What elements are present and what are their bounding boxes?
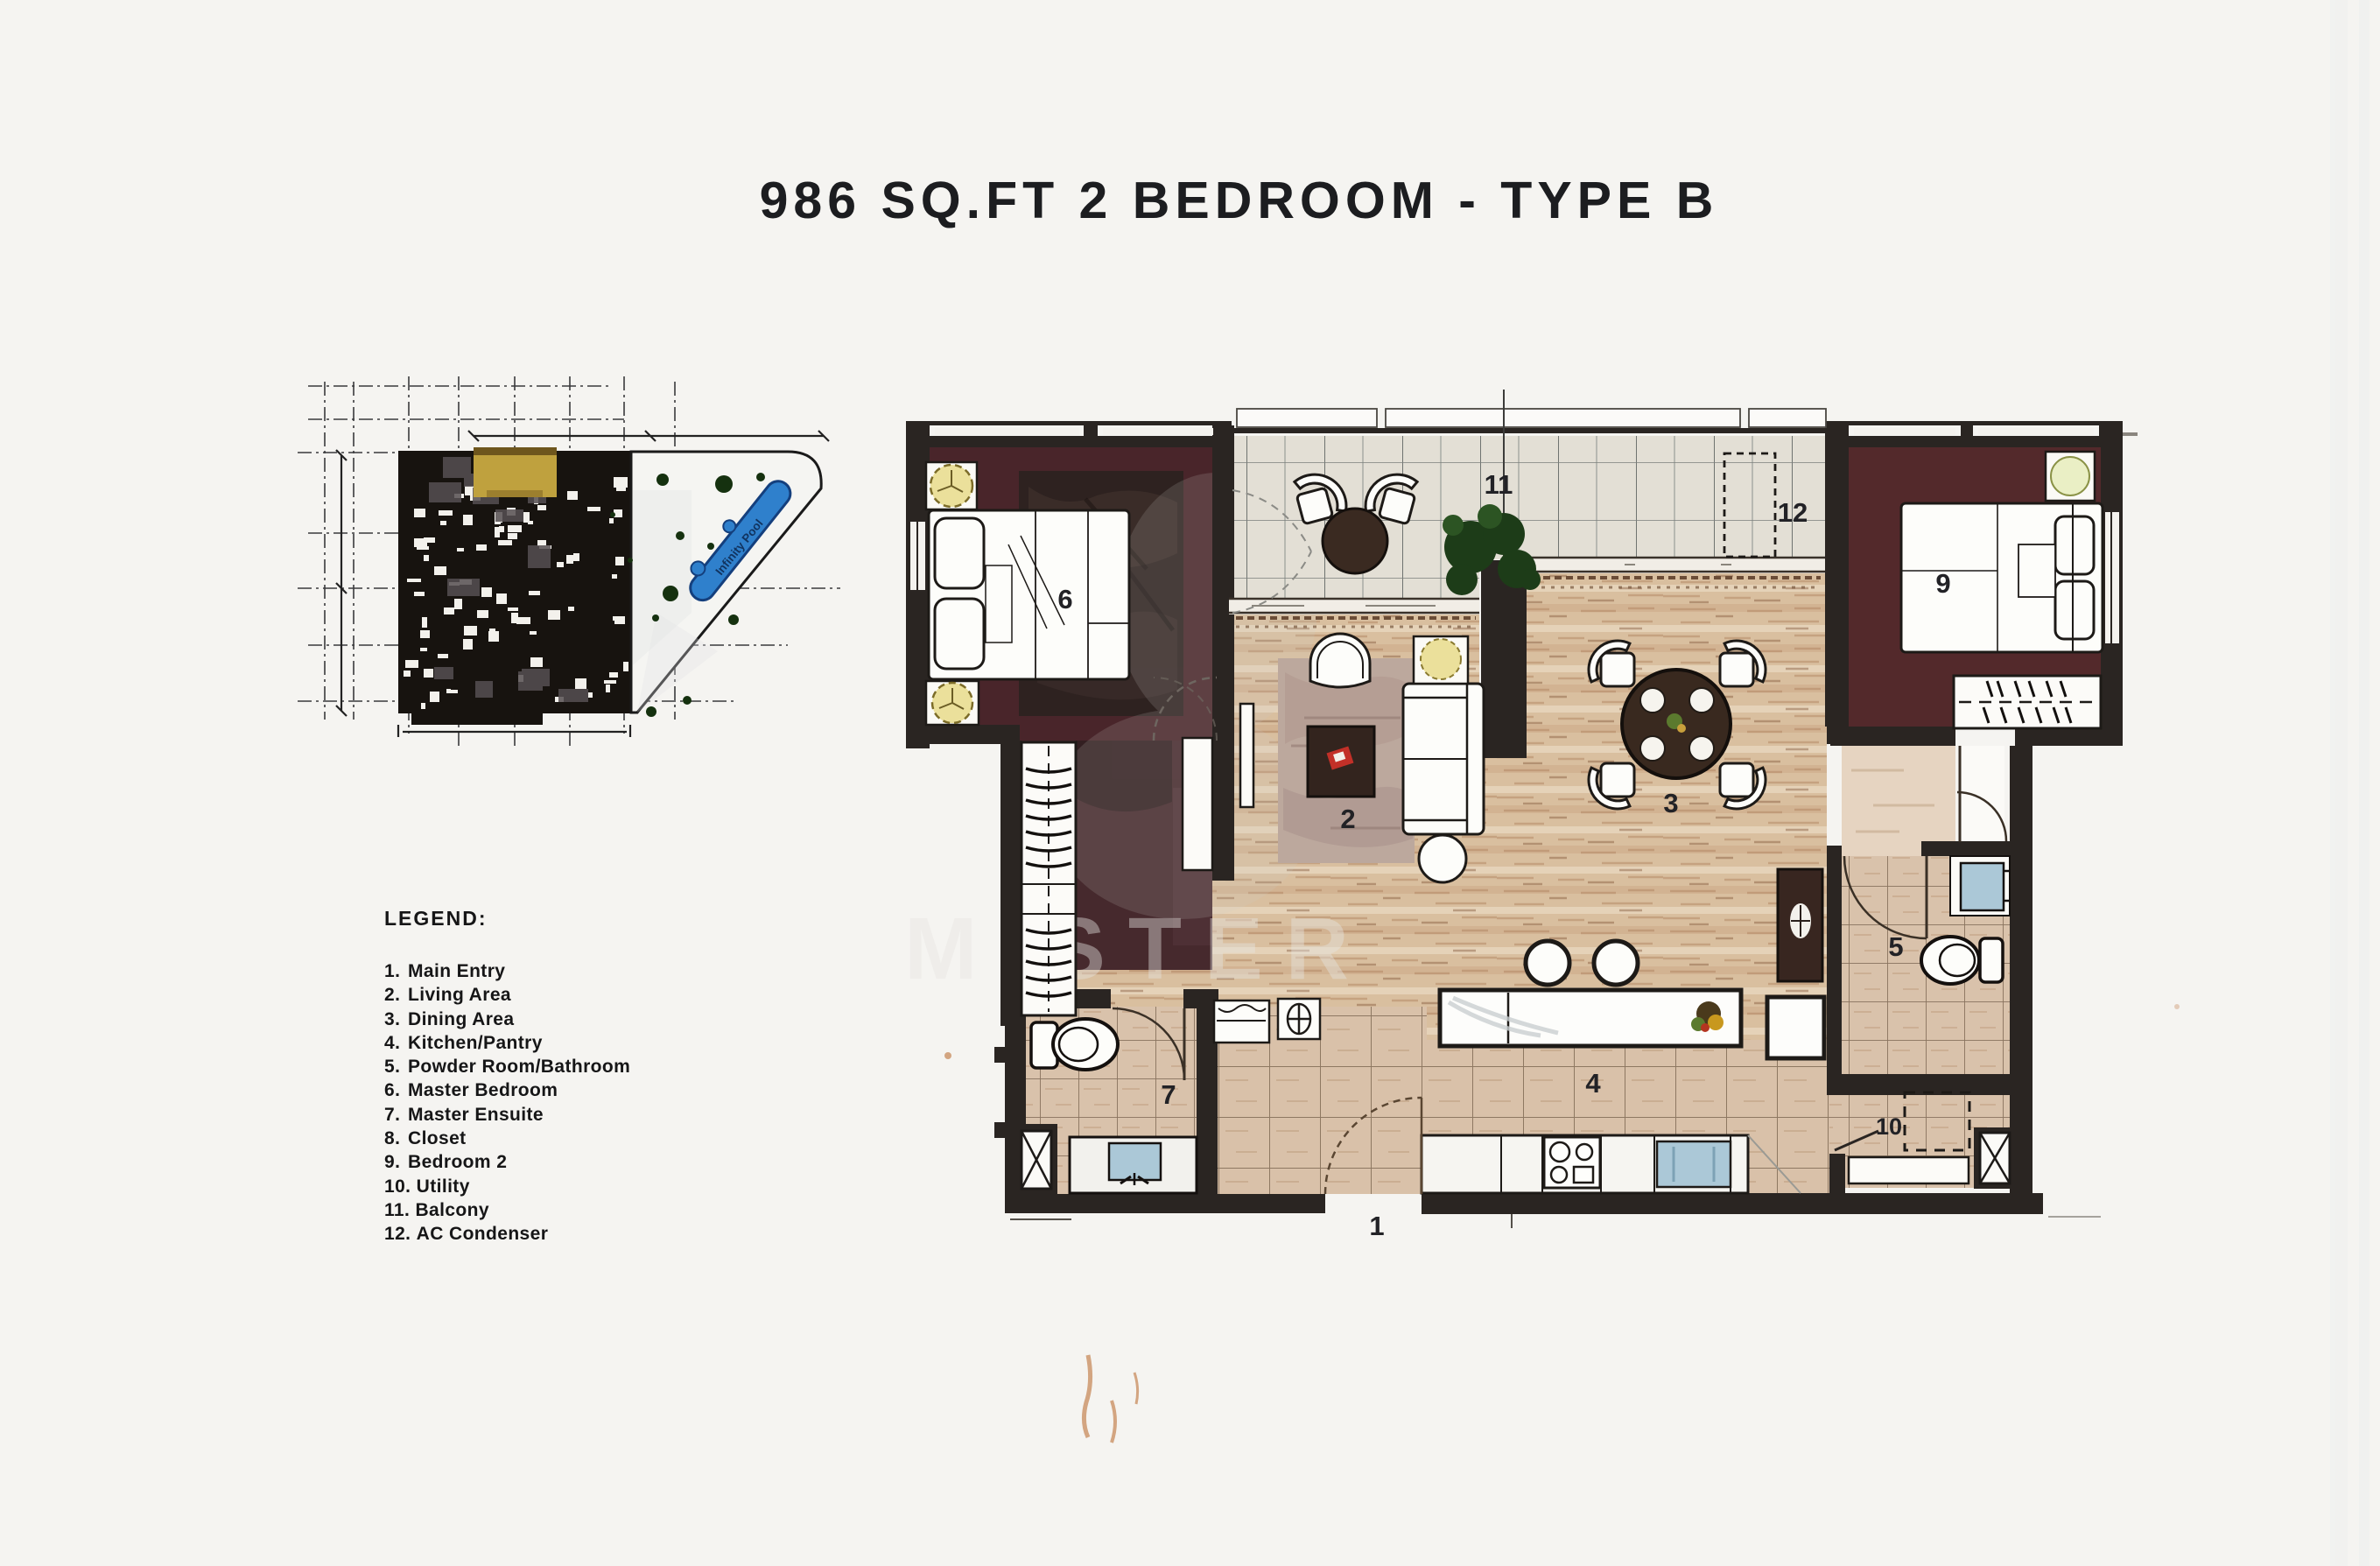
svg-text:12: 12 — [1778, 497, 1808, 528]
svg-text:2: 2 — [1340, 804, 1355, 834]
svg-text:MISTER: MISTER — [904, 900, 1372, 998]
svg-text:9: 9 — [1935, 568, 1950, 599]
svg-text:5: 5 — [1888, 931, 1903, 962]
svg-text:7: 7 — [1161, 1079, 1176, 1110]
svg-text:3: 3 — [1663, 788, 1678, 818]
svg-text:10: 10 — [1876, 1113, 1902, 1140]
svg-text:4: 4 — [1585, 1068, 1601, 1099]
svg-text:6: 6 — [1057, 584, 1072, 614]
svg-text:1: 1 — [1369, 1211, 1384, 1241]
svg-text:11: 11 — [1485, 469, 1513, 500]
